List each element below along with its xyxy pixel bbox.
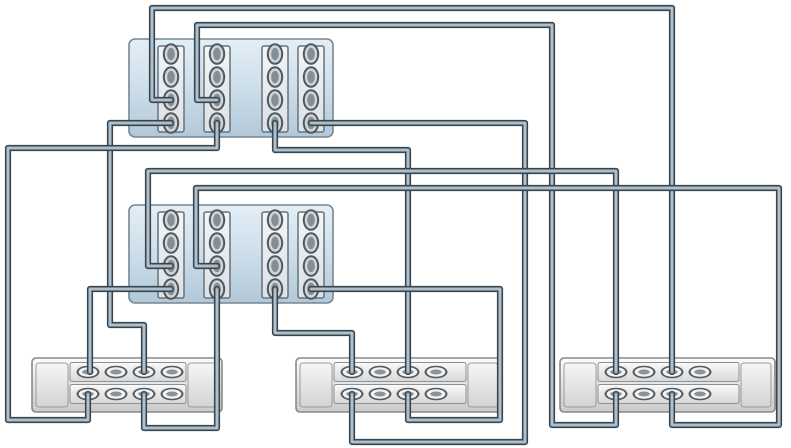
- hba-port-3: [303, 255, 319, 277]
- hba-port-socket: [271, 71, 279, 83]
- hba-port-2: [163, 66, 179, 88]
- shelf-right-endcap: [741, 363, 771, 407]
- hba-port-1: [209, 209, 225, 231]
- shelf-port-bottom-4: [425, 388, 448, 401]
- hba-port-1: [303, 209, 319, 231]
- shelf-port-socket: [430, 370, 442, 375]
- hba-port-1: [267, 43, 283, 65]
- hba-port-3: [267, 255, 283, 277]
- shelf-port-top-4: [425, 366, 448, 379]
- hba-port-socket: [167, 237, 175, 249]
- shelf-port-socket: [694, 370, 706, 375]
- hba-port-3: [267, 89, 283, 111]
- hba-port-socket: [271, 48, 279, 60]
- hba-port-2: [303, 232, 319, 254]
- hba-port-2: [209, 66, 225, 88]
- hba-port-3: [303, 89, 319, 111]
- shelf-port-bottom-4: [689, 388, 712, 401]
- hba-port-2: [303, 66, 319, 88]
- shelf-port-bottom-2: [369, 388, 392, 401]
- hba-port-socket: [307, 94, 315, 106]
- shelf-port-socket: [638, 370, 650, 375]
- shelf-port-top-2: [105, 366, 128, 379]
- shelf-port-bottom-4: [161, 388, 184, 401]
- shelf-port-top-4: [689, 366, 712, 379]
- shelf-port-socket: [694, 392, 706, 397]
- hba-port-socket: [307, 48, 315, 60]
- shelf-port-bottom-2: [105, 388, 128, 401]
- hba-port-socket: [213, 48, 221, 60]
- storage-cabling-diagram: [0, 0, 791, 448]
- hba-port-1: [209, 43, 225, 65]
- shelf-port-top-2: [369, 366, 392, 379]
- shelf-port-top-4: [161, 366, 184, 379]
- hba-port-1: [267, 209, 283, 231]
- hba-port-socket: [307, 214, 315, 226]
- hba-port-2: [267, 66, 283, 88]
- hba-port-1: [163, 209, 179, 231]
- hba-port-socket: [213, 71, 221, 83]
- shelf-port-socket: [374, 392, 386, 397]
- hba-port-socket: [307, 260, 315, 272]
- hba-port-socket: [271, 214, 279, 226]
- hba-port-socket: [271, 237, 279, 249]
- shelf-right-endcap: [188, 363, 218, 407]
- disk-shelf-2: [296, 358, 502, 412]
- hba-port-1: [303, 43, 319, 65]
- shelf-left-endcap: [300, 363, 332, 407]
- disk-shelf-3: [560, 358, 775, 412]
- hba-port-socket: [213, 237, 221, 249]
- hba-port-socket: [167, 71, 175, 83]
- shelf-port-socket: [110, 370, 122, 375]
- hba-port-2: [163, 232, 179, 254]
- disk-shelf-1: [32, 358, 222, 412]
- hba-port-socket: [167, 48, 175, 60]
- shelf-right-endcap: [468, 363, 498, 407]
- shelf-port-socket: [166, 392, 178, 397]
- cabling-diagram-canvas: [0, 0, 791, 448]
- hba-port-socket: [307, 71, 315, 83]
- shelf-left-endcap: [564, 363, 596, 407]
- shelf-port-socket: [110, 392, 122, 397]
- shelf-port-socket: [430, 392, 442, 397]
- shelf-left-endcap: [36, 363, 68, 407]
- hba-port-2: [209, 232, 225, 254]
- hba-port-socket: [271, 94, 279, 106]
- hba-port-socket: [213, 214, 221, 226]
- shelf-port-socket: [166, 370, 178, 375]
- hba-port-socket: [271, 260, 279, 272]
- hba-port-socket: [307, 237, 315, 249]
- hba-port-1: [163, 43, 179, 65]
- shelf-port-socket: [638, 392, 650, 397]
- shelf-port-bottom-2: [633, 388, 656, 401]
- hba-port-socket: [167, 214, 175, 226]
- shelf-port-top-2: [633, 366, 656, 379]
- hba-port-2: [267, 232, 283, 254]
- shelf-port-socket: [374, 370, 386, 375]
